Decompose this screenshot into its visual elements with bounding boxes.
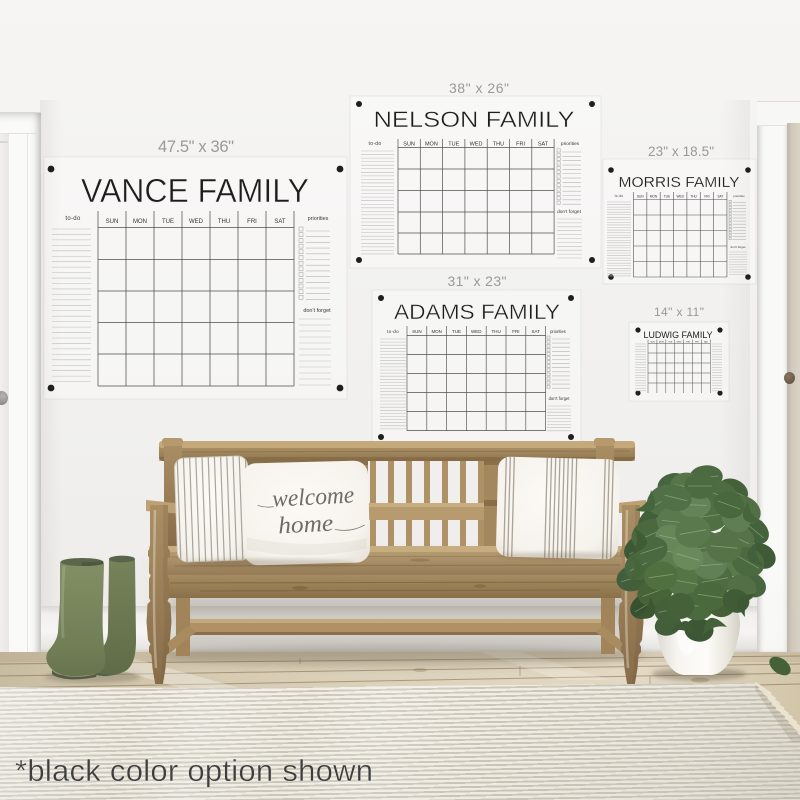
svg-text:ADAMS FAMILY: ADAMS FAMILY [394,300,560,324]
svg-text:THU: THU [493,142,504,148]
svg-text:to-do: to-do [387,329,399,334]
svg-text:SUN: SUN [412,329,422,334]
svg-text:FRI: FRI [695,342,699,344]
svg-text:TUE: TUE [668,342,673,344]
svg-text:MON: MON [133,219,147,225]
svg-text:LUDWIG FAMILY: LUDWIG FAMILY [644,330,713,340]
svg-text:FRI: FRI [247,219,257,225]
svg-text:priorities: priorities [308,216,329,222]
svg-text:SUN: SUN [637,195,644,199]
svg-text:FRI: FRI [704,195,709,199]
svg-text:don't forget: don't forget [549,396,571,401]
svg-text:SUN: SUN [403,142,415,148]
svg-text:31" x 23": 31" x 23" [448,273,507,289]
svg-text:THU: THU [686,342,691,344]
svg-text:MORRIS FAMILY: MORRIS FAMILY [619,174,740,191]
svg-text:SAT: SAT [531,329,540,334]
svg-text:47.5" x 36": 47.5" x 36" [158,138,234,156]
svg-text:SAT: SAT [274,219,286,225]
svg-text:SAT: SAT [538,142,549,148]
svg-text:don't forget: don't forget [303,308,331,314]
svg-text:home: home [278,511,335,540]
svg-text:priorities: priorities [550,329,566,334]
svg-text:FRI: FRI [512,329,519,334]
svg-text:WED: WED [676,195,684,199]
svg-text:MON: MON [425,142,438,148]
svg-text:SAT: SAT [717,195,723,199]
svg-text:don't forget: don't forget [731,245,746,249]
svg-text:14" x 11": 14" x 11" [654,305,704,319]
svg-text:to-do: to-do [65,216,81,222]
svg-text:WED: WED [471,329,482,334]
svg-text:TUE: TUE [162,219,174,225]
svg-text:TUE: TUE [664,195,670,199]
svg-text:WED: WED [677,342,683,344]
svg-text:welcome: welcome [272,482,356,512]
svg-text:THU: THU [491,329,500,334]
svg-text:THU: THU [690,195,697,199]
svg-text:*black color option shown: *black color option shown [15,753,373,788]
svg-text:38" x 26": 38" x 26" [449,80,509,96]
svg-text:priorities: priorities [733,194,745,198]
svg-text:to-do: to-do [369,141,382,147]
svg-text:23" x 18.5": 23" x 18.5" [648,144,714,159]
svg-text:priorities: priorities [561,141,580,147]
svg-text:NELSON FAMILY: NELSON FAMILY [374,107,575,132]
svg-text:SAT: SAT [704,341,709,344]
svg-text:SUN: SUN [106,219,119,225]
svg-text:WED: WED [470,142,483,148]
svg-text:MON: MON [431,329,442,334]
svg-text:TUE: TUE [448,142,459,148]
svg-text:FRI: FRI [516,142,525,148]
svg-text:MON: MON [650,195,658,199]
svg-text:MON: MON [659,342,665,344]
svg-text:to-do: to-do [615,194,624,198]
svg-text:THU: THU [218,219,230,225]
svg-text:SUN: SUN [650,342,655,344]
svg-text:don't forget: don't forget [557,209,582,215]
svg-text:TUE: TUE [452,329,461,334]
svg-text:WED: WED [189,219,204,225]
svg-text:VANCE FAMILY: VANCE FAMILY [81,172,309,209]
